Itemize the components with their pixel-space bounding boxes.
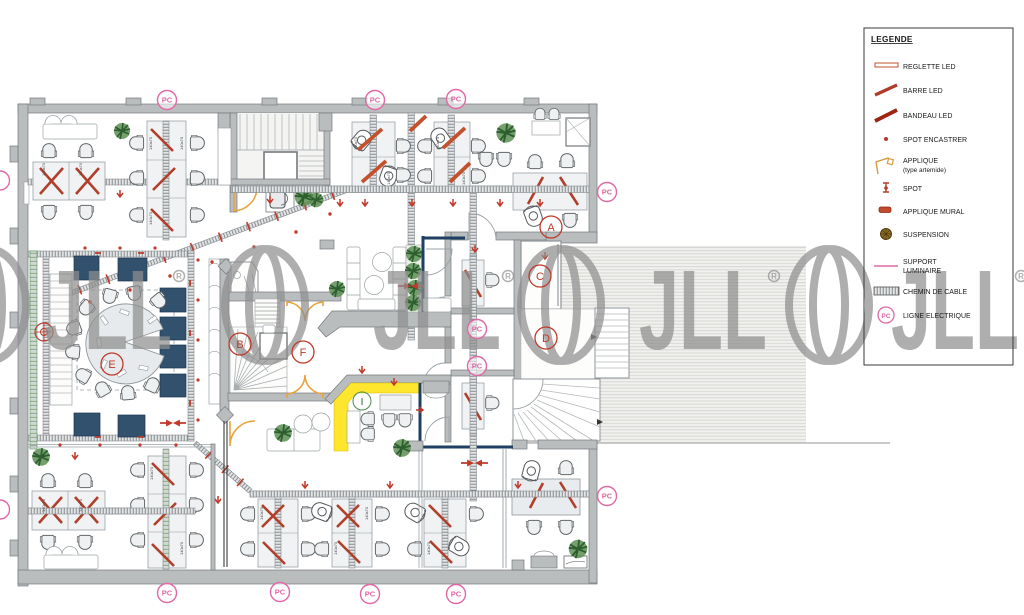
- svg-text:BARRE LED: BARRE LED: [903, 88, 943, 95]
- svg-text:R: R: [176, 272, 182, 281]
- svg-text:140x70: 140x70: [435, 136, 440, 150]
- svg-text:A: A: [547, 222, 555, 234]
- svg-text:SPOT: SPOT: [903, 186, 923, 193]
- svg-text:BANDEAU LED: BANDEAU LED: [903, 113, 952, 120]
- svg-text:E: E: [108, 359, 115, 371]
- svg-text:140x70: 140x70: [41, 498, 46, 512]
- svg-text:D: D: [542, 333, 550, 345]
- svg-text:(type artemide): (type artemide): [903, 167, 946, 174]
- svg-text:F: F: [300, 347, 307, 359]
- svg-text:REGLETTE LED: REGLETTE LED: [903, 64, 956, 71]
- svg-text:SPOT ENCASTRER: SPOT ENCASTRER: [903, 137, 967, 144]
- svg-text:140x70: 140x70: [148, 136, 153, 150]
- svg-text:LEGENDE: LEGENDE: [871, 35, 913, 44]
- svg-text:C: C: [536, 271, 544, 283]
- svg-text:I: I: [361, 397, 364, 408]
- svg-text:R: R: [771, 272, 777, 281]
- svg-text:140x70: 140x70: [426, 541, 431, 555]
- svg-text:140x70: 140x70: [148, 211, 153, 225]
- svg-text:LIGNE ELECTRIQUE: LIGNE ELECTRIQUE: [903, 313, 971, 320]
- svg-text:SUPPORT: SUPPORT: [903, 259, 937, 266]
- svg-text:140x70: 140x70: [333, 541, 338, 555]
- svg-text:B: B: [236, 339, 243, 351]
- svg-text:140x70: 140x70: [41, 162, 46, 176]
- svg-text:140x70: 140x70: [179, 136, 184, 150]
- svg-text:JLL: JLL: [373, 247, 501, 373]
- svg-text:140x70: 140x70: [78, 162, 83, 176]
- svg-text:SUSPENSION: SUSPENSION: [903, 232, 949, 239]
- svg-text:R: R: [1018, 272, 1024, 281]
- svg-text:LUMINAIRE: LUMINAIRE: [903, 268, 941, 275]
- svg-text:APPLIQUE: APPLIQUE: [903, 158, 938, 165]
- svg-text:JLL: JLL: [639, 247, 767, 373]
- svg-text:140x70: 140x70: [386, 171, 391, 185]
- svg-text:APPLIQUE MURAL: APPLIQUE MURAL: [903, 209, 965, 216]
- svg-text:PC: PC: [881, 313, 890, 320]
- svg-text:140x70: 140x70: [353, 136, 358, 150]
- svg-text:140x70: 140x70: [461, 171, 466, 185]
- svg-text:140x70: 140x70: [364, 506, 369, 520]
- svg-text:R: R: [505, 272, 511, 281]
- svg-text:CHEMIN DE CABLE: CHEMIN DE CABLE: [903, 289, 968, 296]
- svg-text:140x70: 140x70: [78, 498, 83, 512]
- svg-text:140x70: 140x70: [259, 506, 264, 520]
- svg-text:140x70: 140x70: [149, 466, 154, 480]
- svg-text:140x70: 140x70: [179, 541, 184, 555]
